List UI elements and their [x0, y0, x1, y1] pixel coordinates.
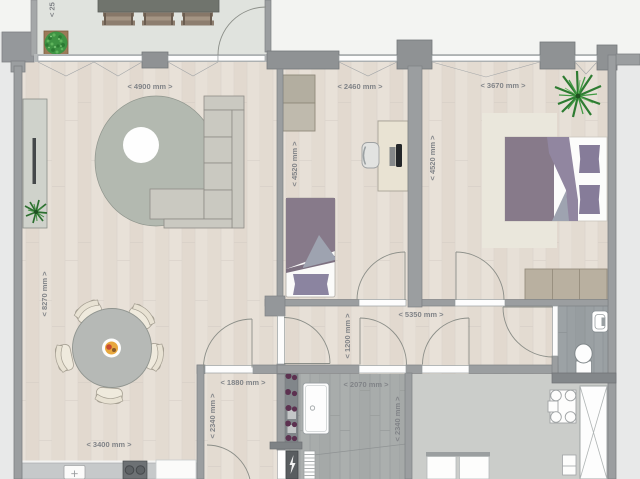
- svg-text:< 4900 mm >: < 4900 mm >: [127, 82, 173, 91]
- svg-text:< 2340 mm >: < 2340 mm >: [208, 393, 217, 439]
- svg-text:< 2340 mm >: < 2340 mm >: [393, 396, 402, 442]
- svg-text:< 3670 mm >: < 3670 mm >: [480, 81, 526, 90]
- svg-text:< 2460 mm >: < 2460 mm >: [337, 82, 383, 91]
- svg-text:< 3400 mm >: < 3400 mm >: [86, 440, 132, 449]
- svg-text:< 25: < 25: [48, 2, 57, 17]
- svg-text:< 4520 mm >: < 4520 mm >: [290, 141, 299, 187]
- svg-text:< 2070 mm >: < 2070 mm >: [343, 380, 389, 389]
- svg-text:< 8270 mm >: < 8270 mm >: [40, 271, 49, 317]
- svg-text:< 4520 mm >: < 4520 mm >: [428, 135, 437, 181]
- svg-text:< 5350 mm >: < 5350 mm >: [398, 310, 444, 319]
- svg-text:< 1200 mm >: < 1200 mm >: [343, 313, 352, 359]
- svg-text:< 1880 mm >: < 1880 mm >: [220, 378, 266, 387]
